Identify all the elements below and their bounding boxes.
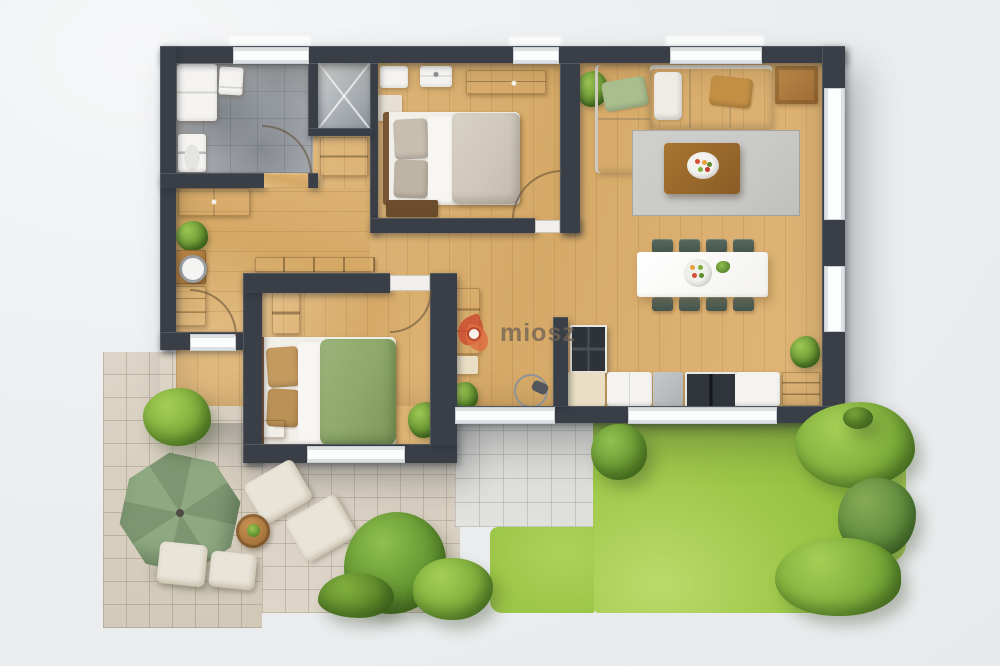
window-sill bbox=[509, 37, 561, 46]
grass-tuft bbox=[843, 407, 873, 429]
watermark: miosz bbox=[452, 315, 582, 355]
window-bedroom2 bbox=[307, 446, 405, 463]
wall-bedroom1-bottom bbox=[370, 218, 535, 233]
floor-plan-scene: miosz bbox=[0, 0, 1000, 666]
wall-bedroom2-top bbox=[243, 273, 390, 293]
fruits bbox=[690, 265, 695, 270]
wall-art bbox=[420, 66, 452, 87]
bathtub bbox=[177, 64, 217, 121]
watermark-brand-text: miosz bbox=[500, 319, 576, 348]
wall-left bbox=[160, 46, 176, 350]
floor-shower bbox=[318, 63, 370, 129]
logo-center bbox=[467, 327, 481, 341]
bed-main-pillow bbox=[393, 159, 428, 198]
bed-second-duvet bbox=[320, 339, 396, 445]
washbasin bbox=[178, 134, 206, 172]
wall-shower-left bbox=[308, 63, 318, 135]
entrance-door bbox=[190, 334, 236, 351]
umbrella-pole bbox=[175, 508, 184, 517]
vanity-mirror bbox=[179, 255, 207, 283]
bush-bottom-mid bbox=[413, 558, 493, 620]
door-leaf-bedroom2 bbox=[390, 275, 430, 291]
door-leaf-bedroom1 bbox=[535, 220, 560, 233]
wall-bedroom2-left bbox=[243, 273, 262, 463]
hall-sideboard bbox=[178, 188, 250, 216]
plant-hallway bbox=[176, 221, 208, 251]
wall-bedroom2-right bbox=[430, 273, 457, 446]
window-bathroom bbox=[233, 47, 309, 64]
dresser-bedroom2 bbox=[272, 292, 300, 334]
bed-main-frame bbox=[383, 112, 389, 205]
window-kitchen bbox=[628, 407, 777, 424]
kitchen-stove bbox=[653, 372, 683, 406]
lounger-back bbox=[156, 541, 208, 588]
dining-chair bbox=[652, 239, 673, 253]
wall-bedroom1-left bbox=[370, 63, 378, 233]
lawn-left-extension bbox=[490, 527, 594, 613]
nightstand-bedroom2 bbox=[259, 420, 285, 438]
sofa-pillow-white bbox=[654, 72, 682, 120]
table-plant bbox=[247, 524, 260, 537]
window-sill bbox=[666, 36, 764, 46]
fruit-bowl-dining bbox=[684, 259, 712, 287]
toilet bbox=[218, 66, 243, 95]
bed-second-pillow bbox=[266, 346, 301, 388]
corridor-wardrobe bbox=[255, 257, 375, 272]
plant-kitchen-counter bbox=[790, 336, 820, 368]
bed-main-duvet bbox=[452, 113, 520, 204]
dining-chair bbox=[706, 239, 727, 253]
window-living bbox=[670, 47, 762, 64]
kitchen-cabinet-wood bbox=[782, 372, 820, 406]
fruit-plate-coffee-table bbox=[687, 152, 719, 179]
tree-patio-top bbox=[143, 388, 211, 446]
nightstand-bedroom1 bbox=[380, 66, 408, 88]
dining-chair bbox=[706, 297, 727, 311]
bush-lawn-bottom-right bbox=[775, 538, 901, 616]
patio-side-table bbox=[236, 514, 270, 548]
kitchen-cabinet-white bbox=[607, 372, 652, 406]
shrub-on-lawn bbox=[591, 424, 647, 480]
window-bedroom1 bbox=[513, 47, 559, 64]
kitchen-cabinet-cream bbox=[568, 372, 605, 406]
kitchen-cabinet-white2 bbox=[735, 372, 780, 406]
wall-bathroom-bottom bbox=[160, 173, 264, 188]
kitchen-cooktop bbox=[685, 372, 737, 410]
wall-bedroom1-right bbox=[560, 63, 580, 233]
bush-bottom-left bbox=[318, 573, 394, 618]
wall-bathroom-bottom-right bbox=[308, 173, 318, 188]
bed-main-pillow bbox=[393, 118, 429, 160]
threshold-bathroom-door bbox=[264, 175, 308, 188]
wall-shower-bottom bbox=[308, 128, 372, 136]
dining-chair bbox=[679, 297, 700, 311]
watermark-logo-icon bbox=[452, 315, 492, 353]
sofa-pillow-tan bbox=[709, 75, 754, 109]
terrace-tiles bbox=[455, 423, 593, 527]
bench-bedroom1 bbox=[386, 200, 438, 217]
media-shelf-bedroom1 bbox=[466, 70, 546, 94]
dining-chair bbox=[733, 297, 754, 311]
fruits bbox=[695, 159, 700, 164]
dining-chair bbox=[652, 297, 673, 311]
window-sill bbox=[229, 36, 311, 46]
lounger-seat bbox=[208, 550, 258, 591]
sliding-door-terrace bbox=[455, 407, 555, 424]
side-table-living bbox=[775, 66, 818, 104]
dining-chair bbox=[733, 239, 754, 253]
dining-chair bbox=[679, 239, 700, 253]
window-dining-right bbox=[824, 266, 845, 332]
window-living-right bbox=[824, 88, 845, 220]
closet-cabinet bbox=[320, 137, 368, 176]
